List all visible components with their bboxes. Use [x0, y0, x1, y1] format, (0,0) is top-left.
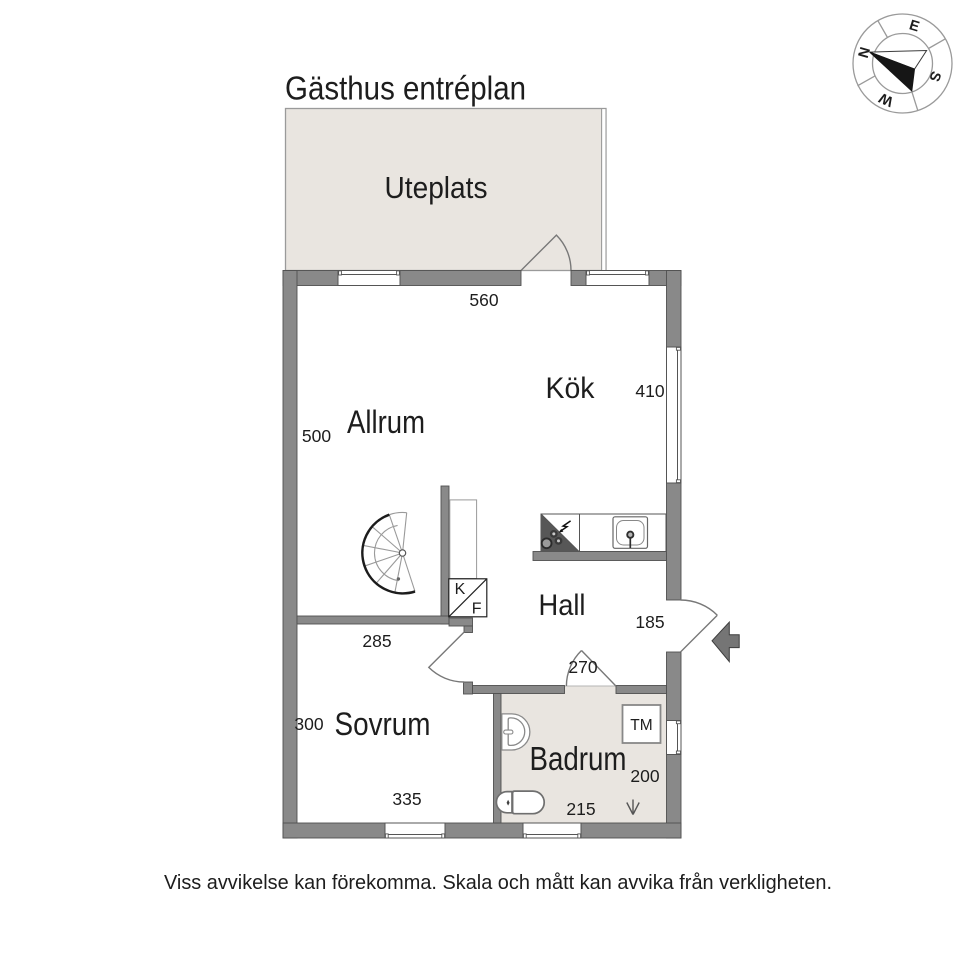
svg-text:Viss avvikelse kan förekomma.: Viss avvikelse kan förekomma. Skala och …: [164, 872, 832, 894]
svg-text:410: 410: [635, 381, 664, 401]
svg-text:Uteplats: Uteplats: [385, 171, 488, 205]
svg-text:Badrum: Badrum: [530, 740, 627, 777]
svg-text:285: 285: [362, 631, 391, 651]
svg-text:200: 200: [630, 766, 659, 786]
svg-text:185: 185: [635, 612, 664, 632]
svg-text:Kök: Kök: [546, 372, 596, 405]
svg-text:300: 300: [294, 714, 323, 734]
svg-text:F: F: [472, 600, 482, 617]
svg-text:500: 500: [302, 426, 331, 446]
svg-text:K: K: [455, 581, 466, 598]
svg-text:Hall: Hall: [539, 589, 586, 622]
svg-text:Gästhus entréplan: Gästhus entréplan: [285, 70, 526, 107]
svg-text:335: 335: [392, 789, 421, 809]
svg-text:270: 270: [568, 657, 597, 677]
svg-text:TM: TM: [630, 717, 652, 734]
svg-text:215: 215: [566, 799, 595, 819]
svg-text:Sovrum: Sovrum: [335, 706, 431, 742]
svg-text:Allrum: Allrum: [347, 404, 425, 440]
svg-text:560: 560: [469, 290, 498, 310]
